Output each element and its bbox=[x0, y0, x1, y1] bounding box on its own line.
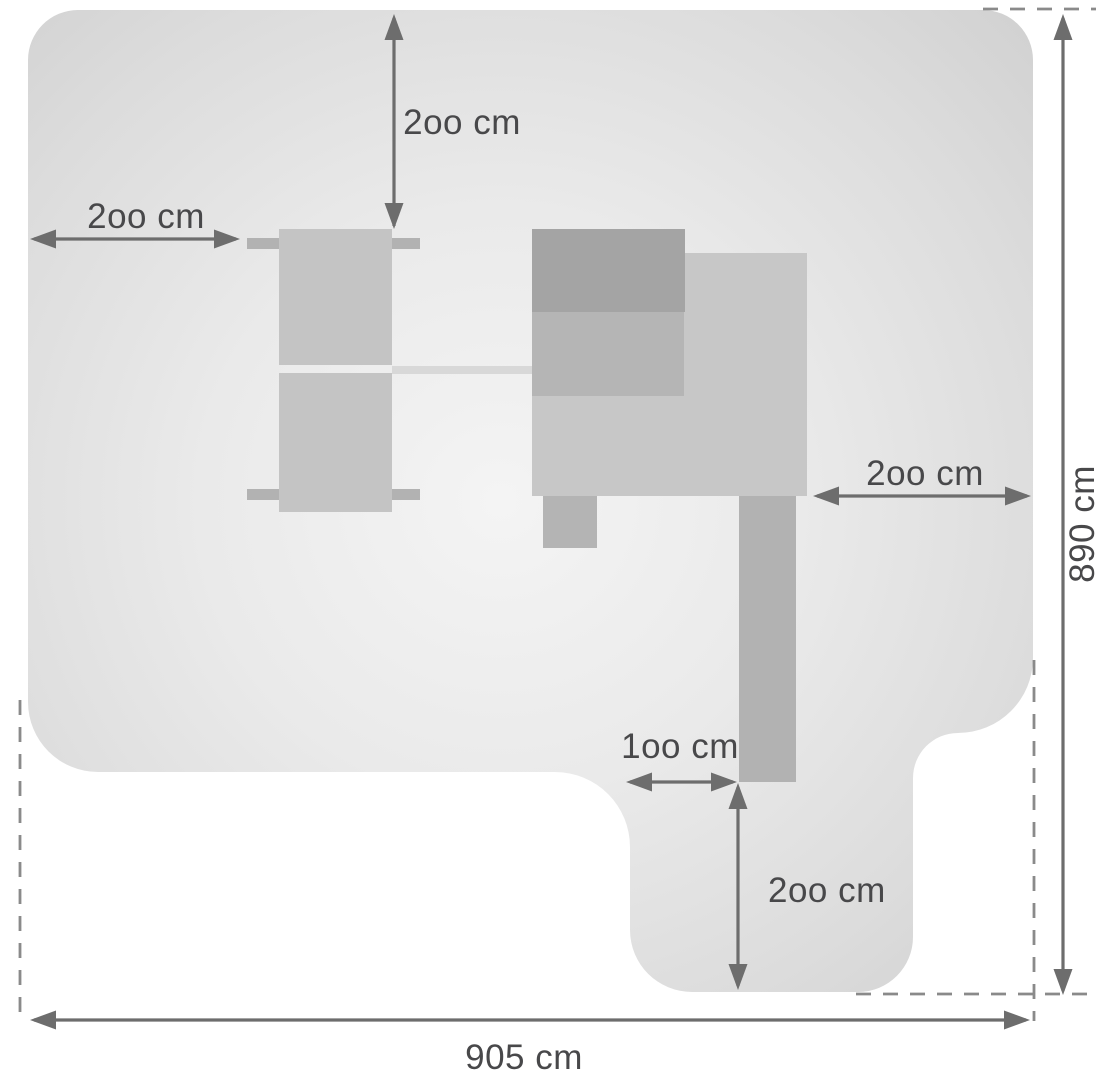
swing-frame-tab-bottom-left bbox=[247, 489, 280, 500]
dimension-label-total-width: 905 cm bbox=[465, 1038, 583, 1077]
connecting-beam bbox=[392, 366, 532, 374]
tower-foot bbox=[543, 496, 597, 548]
swing-frame-tab-top-right bbox=[392, 238, 420, 249]
swing-frame-tab-bottom-right bbox=[392, 489, 420, 500]
tower-mid-deck bbox=[532, 312, 684, 396]
safety-zone-diagram: 2oo cm 2oo cm 2oo cm 1oo cm 2oo cm 890 c… bbox=[0, 0, 1100, 1080]
dimension-slide-width: 1oo cm bbox=[621, 727, 739, 792]
diagram-canvas: 2oo cm 2oo cm 2oo cm 1oo cm 2oo cm 890 c… bbox=[0, 0, 1100, 1080]
tower-roof bbox=[532, 229, 685, 312]
dimension-label-slide-width: 1oo cm bbox=[621, 727, 739, 766]
dimension-label-left: 2oo cm bbox=[87, 197, 205, 236]
dimension-label-right: 2oo cm bbox=[866, 454, 984, 493]
slide bbox=[739, 496, 796, 782]
swing-bay-bottom bbox=[279, 373, 392, 512]
dimension-label-top: 2oo cm bbox=[403, 103, 521, 142]
dimension-label-slide-runout: 2oo cm bbox=[768, 871, 886, 910]
dimension-label-total-depth: 890 cm bbox=[1063, 465, 1100, 583]
swing-frame-tab-top-left bbox=[247, 238, 280, 249]
swing-bay-top bbox=[279, 229, 392, 365]
